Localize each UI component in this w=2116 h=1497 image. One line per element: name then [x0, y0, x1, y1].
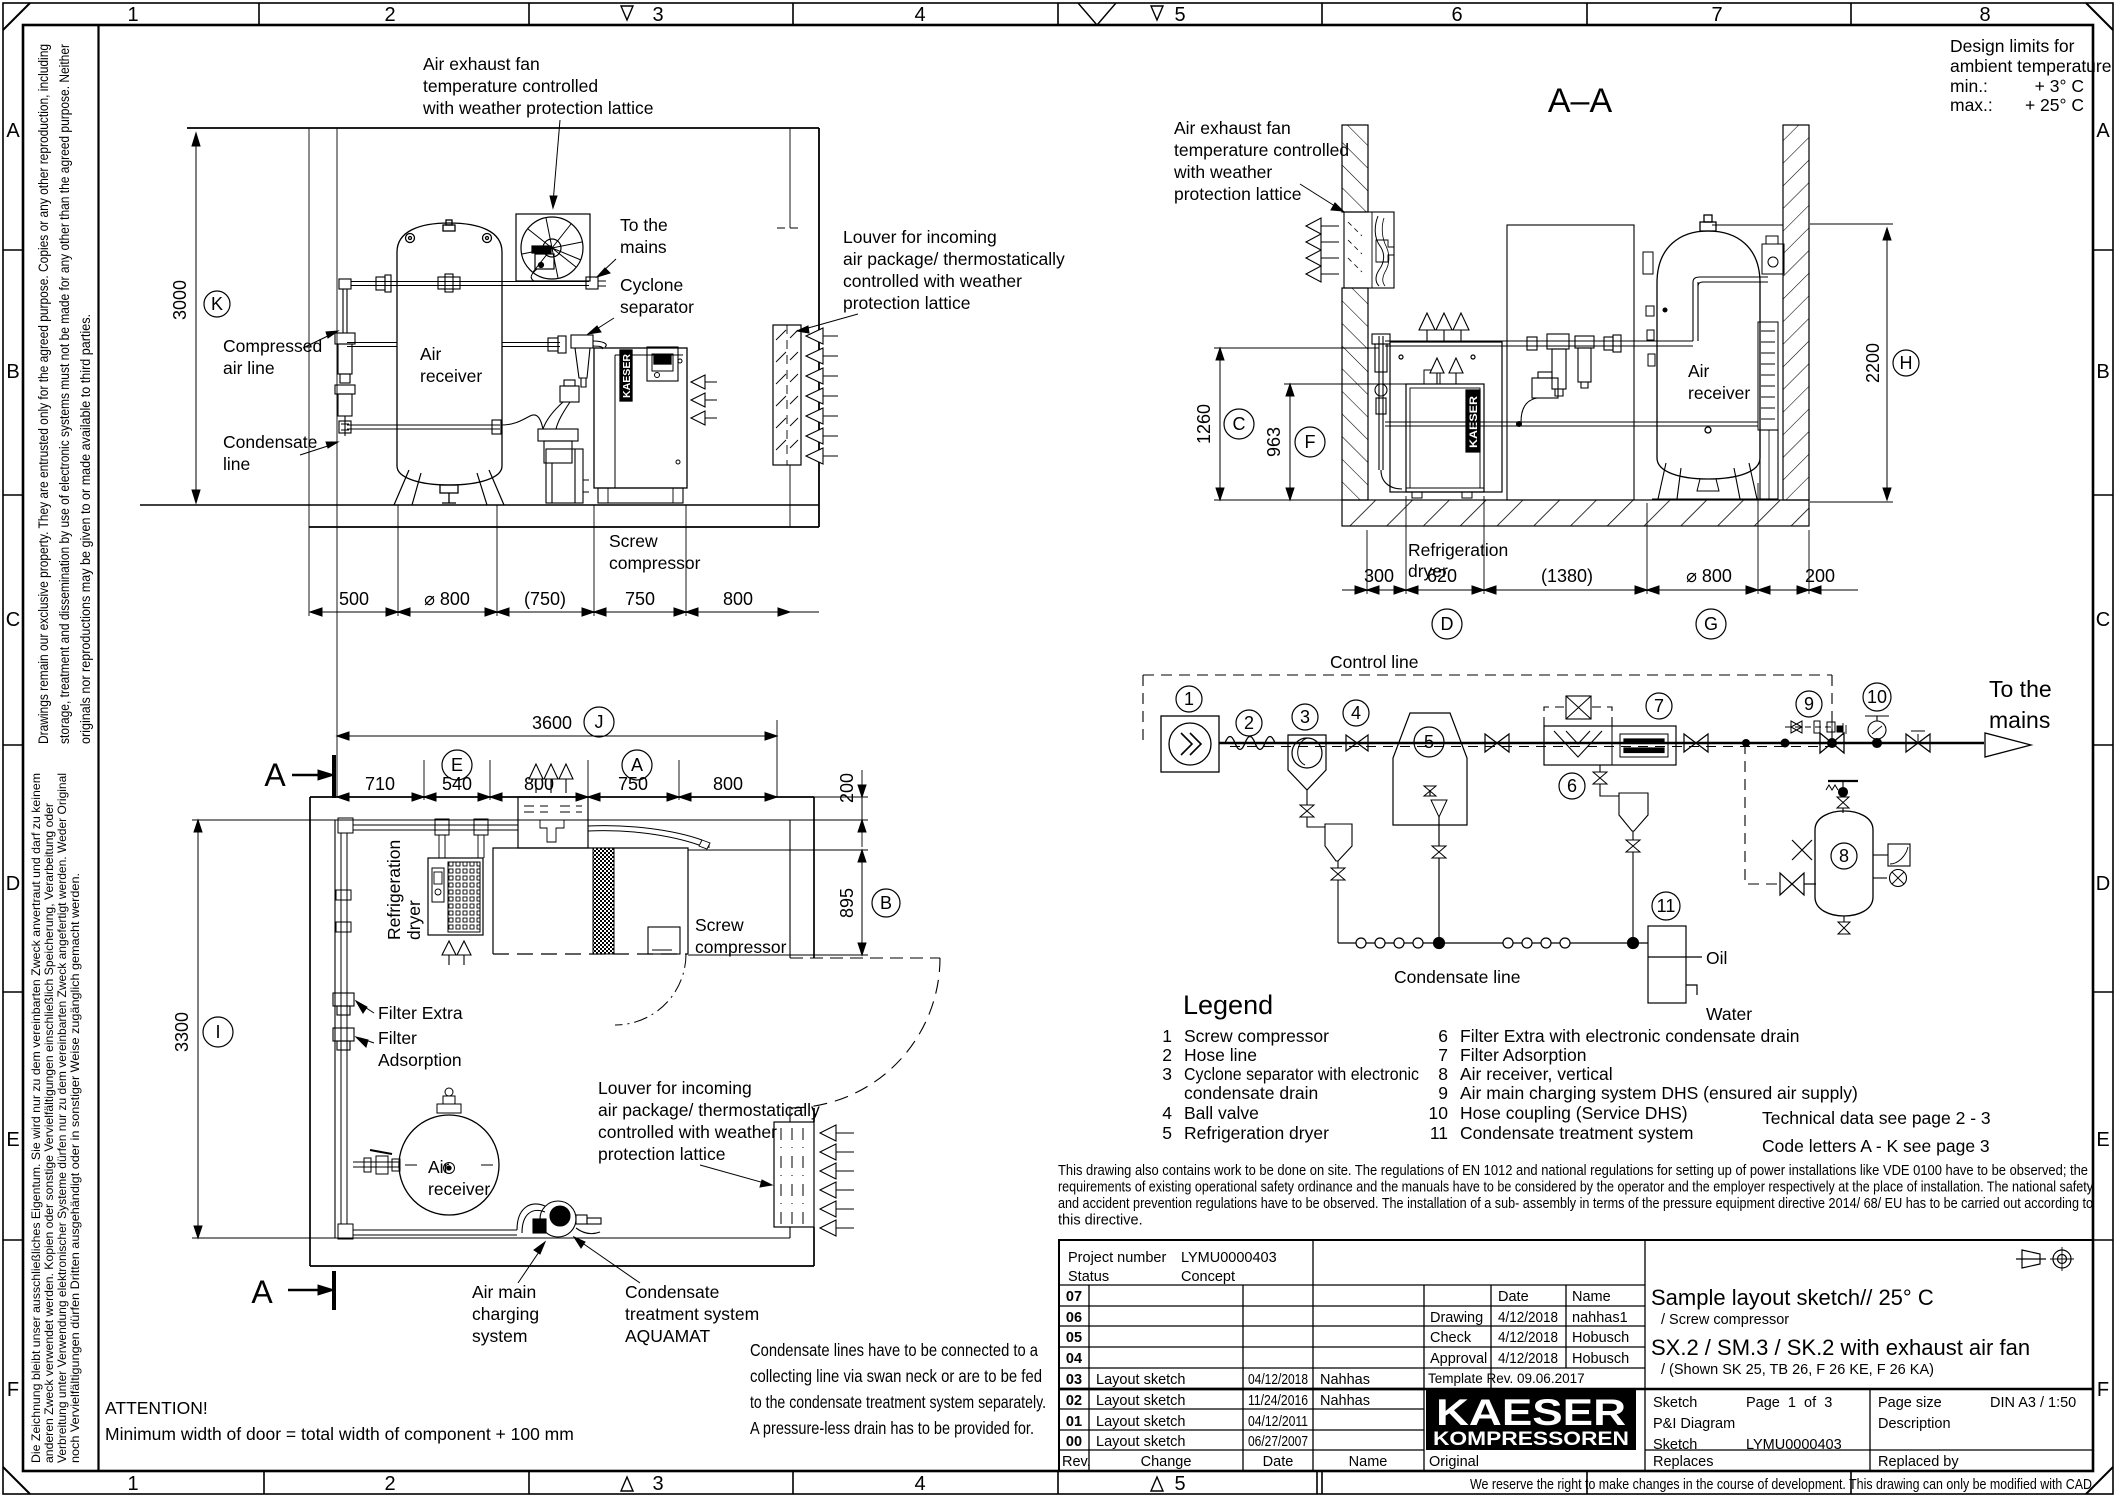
svg-text:compressor: compressor	[695, 937, 787, 957]
svg-text:receiver: receiver	[1688, 383, 1750, 403]
svg-text:8: 8	[1438, 1064, 1448, 1084]
svg-text:4/12/2018: 4/12/2018	[1498, 1330, 1558, 1346]
svg-text:dryer: dryer	[404, 900, 424, 940]
svg-text:10: 10	[1429, 1103, 1449, 1123]
svg-text:Approval: Approval	[1430, 1351, 1487, 1367]
svg-text:710: 710	[365, 774, 395, 794]
svg-text:7: 7	[1711, 4, 1722, 26]
svg-text:06/27/2007: 06/27/2007	[1248, 1434, 1308, 1450]
svg-text:Oil: Oil	[1706, 948, 1727, 968]
svg-text:Air: Air	[420, 344, 442, 364]
svg-text:Filter: Filter	[378, 1028, 417, 1048]
svg-text:compressor: compressor	[609, 553, 701, 573]
svg-text:Code letters A - K see page 3: Code letters A - K see page 3	[1762, 1136, 1990, 1156]
svg-text:Sample layout sketch// 25° C: Sample layout sketch// 25° C	[1651, 1285, 1934, 1310]
svg-text:Drawings remain our exclusive: Drawings remain our exclusive property. …	[36, 44, 51, 744]
svg-text:11/24/2016: 11/24/2016	[1248, 1393, 1308, 1409]
svg-text:air package/ thermostatically: air package/ thermostatically	[843, 249, 1065, 269]
svg-text:Air receiver, vertical: Air receiver, vertical	[1460, 1064, 1613, 1084]
svg-text:7: 7	[1654, 696, 1664, 716]
svg-text:5: 5	[1424, 732, 1434, 752]
svg-text:3000: 3000	[170, 280, 190, 320]
svg-text:3: 3	[652, 4, 663, 26]
svg-text:Layout sketch: Layout sketch	[1096, 1434, 1185, 1450]
svg-text:Filter Adsorption: Filter Adsorption	[1460, 1045, 1586, 1065]
svg-text:Layout sketch: Layout sketch	[1096, 1372, 1185, 1388]
svg-text:SX.2 / SM.3 / SK.2 with exhaus: SX.2 / SM.3 / SK.2 with exhaust air fan	[1651, 1335, 2030, 1360]
svg-text:1260: 1260	[1194, 404, 1214, 444]
svg-text:Hose line: Hose line	[1184, 1045, 1257, 1065]
svg-text:1: 1	[127, 1473, 138, 1495]
svg-text:I: I	[215, 1022, 220, 1042]
svg-text:controlled with weather: controlled with weather	[598, 1122, 777, 1142]
svg-text:We reserve the right to make c: We reserve the right to make changes in …	[1470, 1477, 2092, 1493]
svg-text:⌀ 800: ⌀ 800	[424, 589, 470, 609]
svg-text:A pressure-less drain has to b: A pressure-less drain has to be provided…	[750, 1418, 1034, 1438]
svg-text:Screw: Screw	[695, 915, 744, 935]
svg-text:3: 3	[1300, 707, 1310, 727]
svg-text:Drawing: Drawing	[1430, 1310, 1483, 1326]
svg-text:04/12/2011: 04/12/2011	[1248, 1414, 1308, 1430]
svg-text:Name: Name	[1349, 1454, 1388, 1470]
svg-text:Nahhas: Nahhas	[1320, 1393, 1370, 1409]
svg-text:1: 1	[1162, 1026, 1172, 1046]
svg-text:F: F	[2097, 1379, 2109, 1401]
svg-text:To the: To the	[1989, 676, 2052, 702]
svg-text:To the: To the	[620, 215, 668, 235]
svg-text:B: B	[880, 893, 892, 913]
svg-text:Screw compressor: Screw compressor	[1184, 1026, 1329, 1046]
svg-text:06: 06	[1066, 1310, 1082, 1326]
svg-text:01: 01	[1066, 1414, 1082, 1430]
svg-text:Status: Status	[1068, 1269, 1109, 1285]
svg-text:receiver: receiver	[420, 366, 482, 386]
svg-text:D: D	[6, 873, 20, 895]
svg-text:Hobusch: Hobusch	[1572, 1330, 1629, 1346]
svg-text:2200: 2200	[1863, 343, 1883, 383]
svg-text:Change: Change	[1141, 1454, 1192, 1470]
svg-text:/ (Shown SK 25, TB 26, F 26 KE: / (Shown SK 25, TB 26, F 26 KE, F 26 KA)	[1661, 1362, 1934, 1378]
svg-text:LYMU0000403: LYMU0000403	[1181, 1250, 1277, 1266]
svg-text:⌀ 800: ⌀ 800	[1686, 566, 1732, 586]
svg-text:ATTENTION!: ATTENTION!	[105, 1398, 208, 1418]
svg-text:collecting line via swan neck: collecting line via swan neck or are to …	[750, 1366, 1042, 1386]
svg-text:11: 11	[1430, 1123, 1448, 1143]
svg-text:Original: Original	[1429, 1454, 1479, 1470]
svg-text:min.:: min.:	[1950, 76, 1988, 96]
svg-text:Screw: Screw	[609, 531, 658, 551]
svg-text:mains: mains	[620, 237, 667, 257]
svg-text:E: E	[6, 1129, 19, 1151]
svg-text:Page 1 of 3: Page 1 of 3	[1746, 1395, 1832, 1411]
svg-text:07: 07	[1066, 1289, 1082, 1305]
svg-text:Verbreitung unter Verwendung e: Verbreitung unter Verwendung elektronisc…	[55, 773, 69, 1463]
svg-text:P&I Diagram: P&I Diagram	[1653, 1416, 1735, 1432]
svg-text:F: F	[1305, 432, 1316, 452]
svg-text:KAESER: KAESER	[1436, 1392, 1626, 1433]
svg-text:Date: Date	[1263, 1454, 1294, 1470]
svg-text:2: 2	[1162, 1045, 1172, 1065]
svg-text:7: 7	[1438, 1045, 1448, 1065]
svg-text:Sketch: Sketch	[1653, 1395, 1697, 1411]
svg-text:E: E	[2096, 1129, 2109, 1151]
svg-text:A: A	[631, 755, 643, 775]
svg-text:B: B	[2096, 361, 2109, 383]
svg-text:5: 5	[1174, 4, 1185, 26]
svg-text:H: H	[1900, 353, 1913, 373]
svg-text:J: J	[595, 712, 604, 732]
svg-text:03: 03	[1066, 1372, 1082, 1388]
svg-text:3300: 3300	[172, 1012, 192, 1052]
svg-text:200: 200	[837, 773, 857, 803]
svg-text:A–A: A–A	[1548, 82, 1613, 120]
svg-text:11: 11	[1657, 896, 1676, 916]
svg-text:Refrigeration: Refrigeration	[1408, 540, 1508, 560]
svg-text:200: 200	[1805, 566, 1835, 586]
svg-text:to the condensate treatment sy: to the condensate treatment system separ…	[750, 1392, 1046, 1412]
svg-text:8: 8	[1839, 846, 1849, 866]
svg-text:1: 1	[127, 4, 138, 26]
svg-text:Design limits for: Design limits for	[1950, 36, 2075, 56]
svg-text:6: 6	[1567, 776, 1577, 796]
svg-text:DIN A3 / 1:50: DIN A3 / 1:50	[1990, 1395, 2076, 1411]
svg-text:+ 25° C: + 25° C	[2025, 95, 2084, 115]
svg-text:Template Rev. 09.06.2017: Template Rev. 09.06.2017	[1428, 1371, 1585, 1386]
svg-text:mains: mains	[1989, 707, 2050, 733]
svg-text:treatment system: treatment system	[625, 1304, 759, 1324]
svg-text:C: C	[1233, 414, 1246, 434]
svg-text:A: A	[251, 1274, 273, 1310]
svg-text:air line: air line	[223, 358, 275, 378]
svg-text:protection lattice: protection lattice	[1174, 184, 1301, 204]
svg-text:requirements of existing opera: requirements of existing operational saf…	[1058, 1180, 2094, 1196]
svg-text:4: 4	[914, 1473, 925, 1495]
svg-text:noch Vervielfältigungen dürfen: noch Vervielfältigungen dürfen Dritten a…	[68, 873, 82, 1463]
svg-text:8: 8	[1979, 4, 1990, 26]
svg-text:Nahhas: Nahhas	[1320, 1372, 1370, 1388]
svg-text:1: 1	[1184, 689, 1194, 709]
svg-text:Air exhaust fan: Air exhaust fan	[423, 54, 540, 74]
svg-text:/ Screw compressor: / Screw compressor	[1661, 1312, 1789, 1328]
svg-text:C: C	[6, 609, 20, 631]
svg-text:Air main: Air main	[472, 1282, 536, 1302]
svg-text:anderen Zweck verwendet werden: anderen Zweck verwendet werden. Kopien o…	[42, 803, 56, 1463]
svg-text:4: 4	[1162, 1103, 1172, 1123]
svg-text:system: system	[472, 1326, 527, 1346]
svg-text:10: 10	[1867, 687, 1887, 707]
svg-text:Air: Air	[428, 1157, 450, 1177]
svg-text:Date: Date	[1498, 1289, 1529, 1305]
svg-text:05: 05	[1066, 1330, 1082, 1346]
svg-text:with weather protection lattic: with weather protection lattice	[422, 98, 654, 118]
svg-text:3: 3	[1162, 1064, 1172, 1084]
svg-text:04: 04	[1066, 1351, 1082, 1367]
svg-text:500: 500	[339, 589, 369, 609]
svg-text:B: B	[6, 361, 19, 383]
svg-text:A: A	[2096, 120, 2110, 142]
svg-text:KAESER: KAESER	[621, 354, 633, 398]
svg-text:+ 3° C: + 3° C	[2035, 76, 2084, 96]
svg-text:800: 800	[723, 589, 753, 609]
svg-text:Filter Extra with electronic c: Filter Extra with electronic condensate …	[1460, 1026, 1799, 1046]
svg-text:ambient temperature: ambient temperature	[1950, 56, 2111, 76]
svg-text:line: line	[223, 454, 250, 474]
svg-text:and accident prevention regula: and accident prevention regulations have…	[1058, 1196, 2093, 1212]
svg-text:2: 2	[384, 4, 395, 26]
svg-text:4/12/2018: 4/12/2018	[1498, 1310, 1558, 1326]
svg-text:Water: Water	[1706, 1004, 1752, 1024]
svg-text:750: 750	[618, 774, 648, 794]
svg-text:540: 540	[442, 774, 472, 794]
svg-text:3: 3	[652, 1473, 663, 1495]
svg-text:air package/ thermostatically: air package/ thermostatically	[598, 1100, 820, 1120]
svg-text:Name: Name	[1572, 1289, 1611, 1305]
svg-text:Condensate treatment system: Condensate treatment system	[1460, 1123, 1693, 1143]
svg-text:separator: separator	[620, 297, 694, 317]
svg-text:Condensate: Condensate	[625, 1282, 719, 1302]
svg-text:originals nor reproductions ma: originals nor reproductions may be given…	[78, 314, 93, 744]
svg-text:Check: Check	[1430, 1330, 1472, 1346]
svg-text:nahhas1: nahhas1	[1572, 1310, 1628, 1326]
svg-text:protection lattice: protection lattice	[843, 293, 970, 313]
svg-text:Filter Extra: Filter Extra	[378, 1003, 463, 1023]
svg-text:00: 00	[1066, 1434, 1082, 1450]
svg-text:963: 963	[1264, 427, 1284, 457]
svg-text:04/12/2018: 04/12/2018	[1248, 1372, 1308, 1388]
svg-text:02: 02	[1066, 1393, 1082, 1409]
svg-text:Layout sketch: Layout sketch	[1096, 1393, 1185, 1409]
svg-text:2: 2	[384, 1473, 395, 1495]
svg-text:Replaced by: Replaced by	[1878, 1454, 1959, 1470]
svg-text:Control line: Control line	[1330, 652, 1419, 672]
svg-text:Layout sketch: Layout sketch	[1096, 1414, 1185, 1430]
svg-text:C: C	[2096, 609, 2110, 631]
svg-text:Louver for incoming: Louver for incoming	[598, 1078, 752, 1098]
svg-text:620: 620	[1427, 566, 1457, 586]
svg-text:AQUAMAT: AQUAMAT	[625, 1326, 711, 1346]
svg-text:D: D	[2096, 873, 2110, 895]
svg-text:F: F	[7, 1379, 19, 1401]
svg-text:This drawing also contains wor: This drawing also contains work to be do…	[1058, 1163, 2088, 1179]
svg-text:Condensate lines have to be co: Condensate lines have to be connected to…	[750, 1340, 1038, 1360]
svg-text:condensate drain: condensate drain	[1184, 1083, 1318, 1103]
svg-text:Cyclone: Cyclone	[620, 275, 683, 295]
svg-text:Hobusch: Hobusch	[1572, 1351, 1629, 1367]
svg-text:Air main charging system DHS (: Air main charging system DHS (ensured ai…	[1460, 1083, 1858, 1103]
svg-text:Condensate line: Condensate line	[1394, 967, 1520, 987]
svg-text:4: 4	[914, 4, 925, 26]
svg-text:max.:: max.:	[1950, 95, 1993, 115]
svg-text:Page size: Page size	[1878, 1395, 1942, 1411]
svg-text:Ball valve: Ball valve	[1184, 1103, 1259, 1123]
svg-text:9: 9	[1438, 1083, 1448, 1103]
svg-text:3600: 3600	[532, 713, 572, 733]
svg-text:Refrigeration dryer: Refrigeration dryer	[1184, 1123, 1329, 1143]
svg-text:K: K	[211, 294, 223, 314]
svg-text:Description: Description	[1878, 1416, 1951, 1432]
svg-text:with weather: with weather	[1173, 162, 1272, 182]
svg-text:Project number: Project number	[1068, 1250, 1166, 1266]
svg-text:750: 750	[625, 589, 655, 609]
svg-text:4/12/2018: 4/12/2018	[1498, 1351, 1558, 1367]
svg-text:Technical data see page 2 - 3: Technical data see page 2 - 3	[1762, 1108, 1991, 1128]
svg-text:Hose coupling (Service DHS): Hose coupling (Service DHS)	[1460, 1103, 1688, 1123]
svg-text:A: A	[6, 120, 20, 142]
svg-text:Minimum width of door = total: Minimum width of door = total width of c…	[105, 1424, 574, 1444]
svg-text:5: 5	[1162, 1123, 1172, 1143]
svg-text:controlled with weather: controlled with weather	[843, 271, 1022, 291]
svg-text:KOMPRESSOREN: KOMPRESSOREN	[1433, 1429, 1629, 1450]
svg-text:charging: charging	[472, 1304, 539, 1324]
svg-text:800: 800	[713, 774, 743, 794]
svg-text:Rev.: Rev.	[1062, 1454, 1091, 1470]
svg-text:Air exhaust fan: Air exhaust fan	[1174, 118, 1291, 138]
svg-text:2: 2	[1244, 713, 1254, 733]
svg-text:Air: Air	[1688, 361, 1710, 381]
svg-text:A: A	[264, 757, 286, 793]
svg-text:storage, treatment and dissemi: storage, treatment and dissemination by …	[57, 44, 72, 744]
svg-text:Louver for incoming: Louver for incoming	[843, 227, 997, 247]
svg-text:Adsorption: Adsorption	[378, 1050, 462, 1070]
svg-text:Die Zeichnung bleibt unser aus: Die Zeichnung bleibt unser ausschließlic…	[29, 773, 43, 1463]
svg-text:temperature controlled: temperature controlled	[423, 76, 598, 96]
svg-text:receiver: receiver	[428, 1179, 490, 1199]
svg-text:LYMU0000403: LYMU0000403	[1746, 1437, 1842, 1453]
svg-text:(750): (750)	[524, 589, 566, 609]
svg-text:Sketch: Sketch	[1653, 1437, 1697, 1453]
svg-text:Legend: Legend	[1183, 990, 1273, 1020]
svg-text:Cyclone separator with electro: Cyclone separator with electronic	[1184, 1064, 1419, 1084]
svg-text:Replaces: Replaces	[1653, 1454, 1713, 1470]
svg-text:4: 4	[1351, 703, 1361, 723]
svg-text:G: G	[1704, 614, 1718, 634]
svg-text:Refrigeration: Refrigeration	[384, 840, 404, 940]
svg-text:E: E	[451, 755, 463, 775]
svg-text:6: 6	[1451, 4, 1462, 26]
svg-text:9: 9	[1804, 694, 1814, 714]
svg-text:Condensate: Condensate	[223, 432, 317, 452]
svg-text:5: 5	[1174, 1473, 1185, 1495]
svg-text:this directive.: this directive.	[1058, 1213, 1143, 1229]
svg-text:temperature controlled: temperature controlled	[1174, 140, 1349, 160]
svg-text:Concept: Concept	[1181, 1269, 1235, 1285]
svg-text:300: 300	[1364, 566, 1394, 586]
svg-text:(1380): (1380)	[1541, 566, 1593, 586]
svg-text:protection lattice: protection lattice	[598, 1144, 725, 1164]
svg-text:D: D	[1441, 614, 1454, 634]
svg-text:895: 895	[837, 888, 857, 918]
svg-text:6: 6	[1438, 1026, 1448, 1046]
